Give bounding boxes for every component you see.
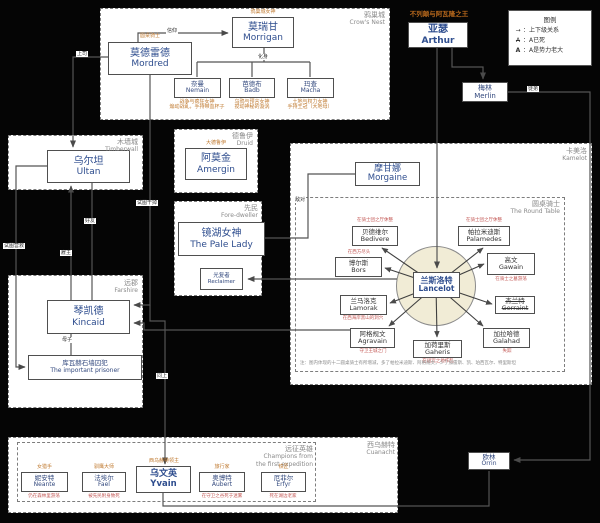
node-morgaine: 摩甘娜 Morgaine (355, 162, 420, 186)
node-orrin: 欧林 Orrin (468, 452, 510, 470)
note-bedivere: 在骑士团之厅休整 (340, 218, 410, 224)
note-bors: 在西方尽头 (324, 250, 394, 256)
label-round-table: 圆桌骑士 The Round Table (500, 200, 560, 216)
edge-label-rescue: 试图营救 (3, 243, 25, 249)
node-lancelot: 兰斯洛特 Lancelot (413, 272, 460, 298)
legend-title: 图例 (513, 14, 587, 24)
node-merlin: 梅林 Merlin (462, 82, 508, 102)
arrow-icon: → (513, 26, 523, 36)
tag-aubert: 旅行家 (199, 465, 245, 470)
node-amergin: 阿莫金 Amergin (185, 148, 247, 180)
node-arthur: 亚瑟 Arthur (408, 22, 468, 48)
node-erfyr: 厄菲尔 Erfyr (261, 472, 306, 492)
node-morrigan: 莫瑞甘 Morrigan (232, 17, 294, 48)
node-bedivere: 贝德维尔 Bedivere (352, 226, 398, 246)
node-gawain: 高文 Gawain (487, 253, 535, 275)
desc-macha: 土地与权力女神 手持王冠（大地母） (270, 100, 350, 110)
label-farshire: 远郡 Farshire (90, 279, 138, 295)
node-palamedes: 帕拉米迪斯 Palamedes (458, 226, 510, 246)
note-fael: 被先民附身致死 (69, 494, 139, 500)
tag-neante: 女猎手 (21, 465, 68, 470)
tag-morrigan: 鸦巢城女神 (228, 10, 298, 15)
tag-fael: 驯鹰大师 (82, 465, 126, 470)
relationship-diagram: 图例 →：上下级关系 A：A已死 A：A是势力老大 鸦巢城 Crow's Nes… (0, 0, 600, 523)
node-aubert: 奥博特 Aubert (199, 472, 245, 492)
node-nemain: 奈曼 Nemain (174, 78, 221, 98)
legend-row-hierarchy: →：上下级关系 (513, 26, 587, 36)
node-yvain: 乌文英 Yvain (136, 466, 191, 493)
tag-mordred: 圆桌骑士 (108, 34, 192, 39)
node-bors: 博尔斯 Bors (335, 257, 382, 277)
edge-label-faith: 信仰 (166, 28, 178, 34)
edge-label-mother-son: 母子 (61, 337, 73, 343)
edge-label-avatar: 化身 (257, 54, 269, 60)
node-agravain: 阿格规文 Agravain (350, 328, 395, 348)
label-fore-dweller: 先民 Fore-dweller (190, 204, 258, 220)
node-fael: 法埃尔 Fael (82, 472, 126, 492)
tag-erfyr: 铁匠 (261, 465, 306, 470)
node-pale-lady: 镜湖女神 The Pale Lady (178, 222, 265, 256)
edge-label-friend: 好友 (84, 218, 96, 224)
node-badb: 芭德布 Badb (229, 78, 275, 98)
node-neante: 妮安特 Neante (21, 472, 68, 492)
edge-label-ditto: 同上 (156, 373, 168, 379)
node-reclaimer: 光复者 Reclaimer (200, 268, 243, 290)
note-lamorak: 在西海岸黑山的洞穴 (323, 316, 403, 322)
note-palamedes: 在骑士团之厅休整 (449, 218, 519, 224)
note-agravain: 守卫王城之门 (338, 349, 408, 355)
tag-arthur: 不列颠与阿瓦隆之王 (403, 11, 475, 18)
node-macha: 玛查 Macha (287, 78, 334, 98)
note-galahad: 失踪 (472, 349, 542, 355)
tag-amergin: 大德鲁伊 (185, 141, 247, 146)
node-ultan: 乌尔坦 Ultan (47, 150, 130, 183)
node-galahad: 加拉哈德 Galahad (483, 328, 530, 348)
edge-label-apprentice: 徒弟 (527, 86, 539, 92)
legend-row-dead: A：A已死 (513, 36, 587, 46)
label-timberwall: 木墙城 Timberwall (60, 138, 138, 154)
label-crows-nest: 鸦巢城 Crow's Nest (300, 11, 385, 27)
edge-label-employer: 雇主 (60, 250, 72, 256)
node-kincaid: 琴凯德 Kincaid (47, 300, 130, 334)
label-kamelot: 卡美洛 Kamelot (545, 147, 587, 163)
note-erfyr: 死在湖边老家 (248, 494, 318, 500)
node-gaheris: 加荷里斯 Gaheris (413, 340, 462, 358)
edge-label-superior: 上司 (76, 51, 88, 57)
tag-yvain: 西乌赫特领主 (133, 459, 195, 464)
legend-box: 图例 →：上下级关系 A：A已死 A：A是势力老大 (508, 10, 592, 66)
round-table-footnote: 注：图内体现的十二圆桌骑士有所增减，多了帕拉米迪斯、阿格规文，少了加雷斯、凯、珀… (300, 361, 562, 366)
note-gawain: 在骑士之墓游荡 (476, 277, 546, 283)
label-cuanacht: 西乌赫特 Cuanacht (345, 441, 395, 457)
edge-label-hostile: 敌对 (294, 197, 306, 203)
legend-row-boss: A：A是势力老大 (513, 46, 587, 56)
node-mordred: 莫德雷德 Mordred (108, 42, 192, 75)
node-prisoner: 库瓦赫石墙囚犯 The important prisoner (28, 355, 142, 380)
node-gerraint: 杰兰特 Gerraint (495, 296, 535, 314)
node-lamorak: 兰马洛克 Lamorak (340, 295, 387, 315)
edge-label-kill: 试图干掉 (136, 200, 158, 206)
